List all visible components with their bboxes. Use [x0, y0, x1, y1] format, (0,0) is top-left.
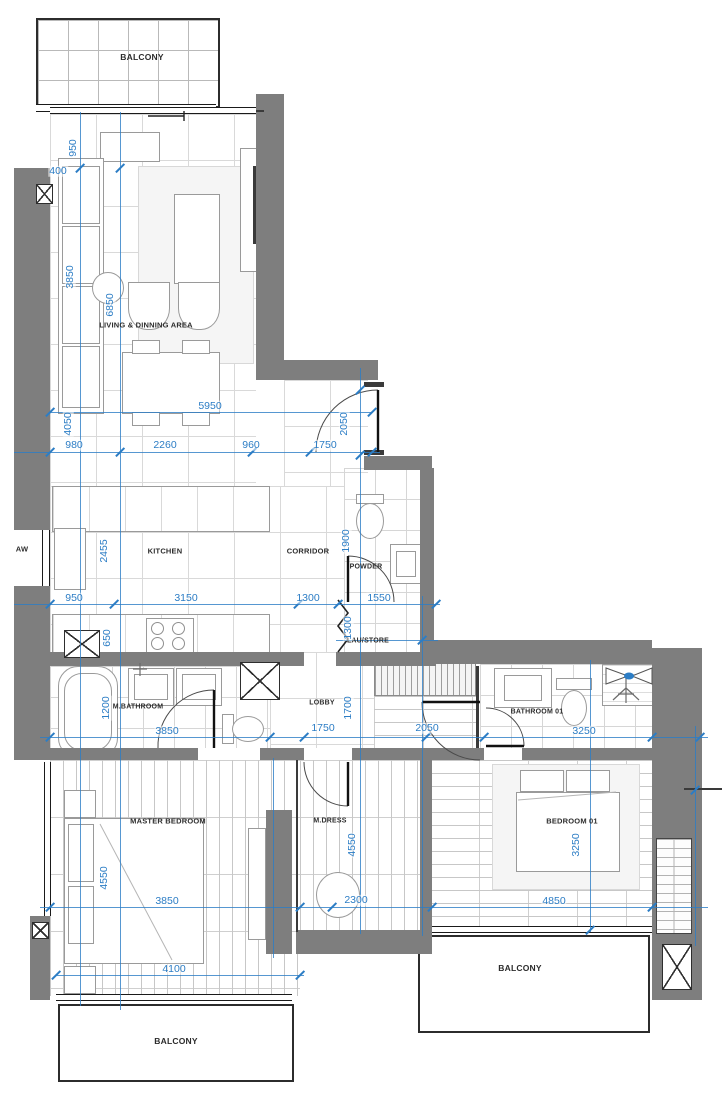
dimension-d1300v: 1300	[343, 615, 354, 640]
dim-line	[50, 412, 372, 413]
dimension-d4550m: 4550	[99, 865, 110, 890]
dimension-d3850m: 3850	[154, 896, 179, 907]
room-label-mdress: M.DRESS	[313, 818, 346, 825]
grid-line	[590, 660, 591, 932]
dimension-d2260: 2260	[152, 440, 177, 451]
dimension-d1700: 1700	[343, 695, 354, 720]
dimension-d4050: 4050	[63, 411, 74, 436]
towel-rail-icon	[606, 668, 652, 684]
dimension-d960: 960	[241, 440, 261, 451]
room-label-living: LIVING & DINNING AREA	[99, 321, 193, 330]
dimension-d3850b: 3850	[154, 726, 179, 737]
dimension-d6850: 6850	[105, 292, 116, 317]
mbath-door-arc	[158, 690, 214, 748]
dimension-d4100: 4100	[161, 964, 186, 975]
mdress-door-arc	[304, 762, 348, 806]
room-label-balcony-top: BALCONY	[120, 52, 163, 62]
dim-line	[14, 604, 440, 605]
dimension-d1300c: 1300	[295, 593, 320, 604]
grid-line	[422, 596, 423, 936]
room-label-balcony-right: BALCONY	[498, 963, 541, 973]
dimension-d2050w: 2050	[414, 723, 439, 734]
room-label-bathroom01: BATHROOM 01	[511, 709, 564, 716]
room-label-lobby: LOBBY	[309, 700, 335, 707]
dimension-d950k: 950	[64, 593, 84, 604]
grid-line	[80, 112, 81, 1006]
dimension-d1750l: 1750	[310, 723, 335, 734]
room-label-corridor: CORRIDOR	[287, 547, 329, 556]
room-label-bedroom01: BEDROOM 01	[546, 817, 598, 826]
dimension-d3250v: 3250	[571, 832, 582, 857]
dimension-d980: 980	[64, 440, 84, 451]
dimension-d1900: 1900	[341, 528, 352, 553]
dimension-d4850: 4850	[541, 896, 566, 907]
room-label-master: MASTER BEDROOM	[130, 817, 206, 826]
dim-line	[14, 452, 380, 453]
bed-fold-line	[100, 824, 172, 960]
grid-line	[695, 726, 696, 946]
dimension-d4550d: 4550	[347, 832, 358, 857]
dimension-d1550: 1550	[366, 593, 391, 604]
dimension-d950t: 950	[68, 138, 79, 158]
dimension-d2455: 2455	[99, 538, 110, 563]
dimension-d5950: 5950	[197, 401, 222, 412]
room-label-aw: AW	[16, 545, 28, 554]
dim-line	[56, 975, 304, 976]
bed-fold-line	[518, 792, 616, 800]
floor-plan: BALCONYLIVING & DINNING AREAKITCHENCORRI…	[0, 0, 722, 1100]
dimension-d3850l: 3850	[65, 264, 76, 289]
grid-line	[273, 758, 274, 958]
faucet-icon	[133, 663, 147, 676]
dimension-d1200: 1200	[101, 695, 112, 720]
dimension-d400: 400	[48, 166, 68, 177]
dimension-d2050e: 2050	[339, 411, 350, 436]
room-label-balcony-left: BALCONY	[154, 1036, 197, 1046]
dimension-d2300: 2300	[343, 895, 368, 906]
room-label-mbathroom: M.BATHROOM	[113, 704, 163, 711]
dimension-d1750e: 1750	[312, 440, 337, 451]
room-label-powder: POWDER	[350, 564, 383, 571]
dimension-d3250b: 3250	[571, 726, 596, 737]
dim-line	[40, 737, 708, 738]
slider-mark	[148, 111, 184, 121]
dimension-d650: 650	[102, 628, 113, 648]
dimension-d3150: 3150	[173, 593, 198, 604]
room-label-kitchen: KITCHEN	[148, 547, 183, 556]
grid-line	[120, 112, 121, 1010]
dim-line	[40, 907, 708, 908]
